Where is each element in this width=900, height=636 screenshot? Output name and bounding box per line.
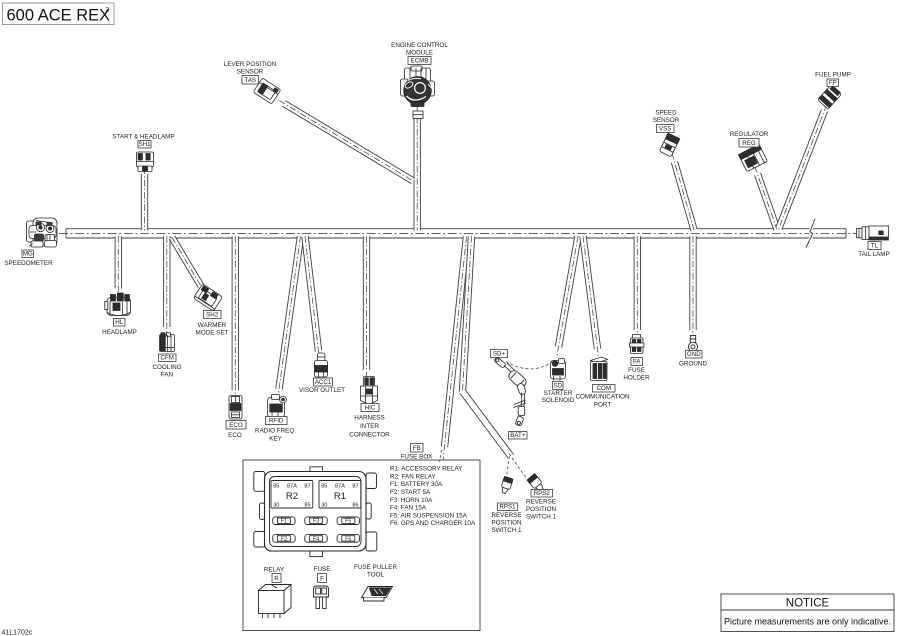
svg-text:RPS2: RPS2 xyxy=(534,490,551,497)
svg-text:85: 85 xyxy=(273,484,279,490)
svg-text:HOLDER: HOLDER xyxy=(623,375,650,382)
svg-text:LEVER POSITION: LEVER POSITION xyxy=(224,61,277,68)
svg-text:MG: MG xyxy=(23,251,33,258)
svg-text:REG: REG xyxy=(742,140,756,147)
svg-text:HIC: HIC xyxy=(365,405,376,412)
svg-text:CFM: CFM xyxy=(160,355,173,362)
svg-text:SOLENOID: SOLENOID xyxy=(542,397,575,404)
svg-text:R: R xyxy=(274,576,279,583)
svg-text:TAS: TAS xyxy=(244,77,256,84)
svg-text:COOLING: COOLING xyxy=(152,364,181,371)
svg-text:RELAY: RELAY xyxy=(264,567,285,574)
svg-text:POSITION: POSITION xyxy=(526,506,557,513)
svg-text:COM: COM xyxy=(597,385,611,392)
svg-text:GROUND: GROUND xyxy=(679,361,707,368)
svg-text:VSS: VSS xyxy=(659,126,671,133)
svg-text:BAT+: BAT+ xyxy=(510,432,526,439)
svg-text:SPEED: SPEED xyxy=(655,110,677,117)
svg-text:87A: 87A xyxy=(287,484,297,490)
svg-text:F5: AIR SUSPENSION 15A: F5: AIR SUSPENSION 15A xyxy=(390,512,468,519)
svg-text:87: 87 xyxy=(304,484,310,490)
svg-text:RPS1: RPS1 xyxy=(499,504,516,511)
svg-text:86: 86 xyxy=(352,503,358,509)
svg-text:F: F xyxy=(320,576,324,583)
svg-text:F6: F6 xyxy=(345,536,351,542)
svg-text:85: 85 xyxy=(321,484,327,490)
svg-text:GND: GND xyxy=(687,351,701,358)
svg-text:NOTICE: NOTICE xyxy=(786,598,830,610)
svg-text:30: 30 xyxy=(321,503,327,509)
svg-text:87: 87 xyxy=(352,484,358,490)
svg-text:SWITCH 1: SWITCH 1 xyxy=(526,514,557,521)
svg-text:TL: TL xyxy=(871,243,879,250)
svg-text:START & HEADLAMP: START & HEADLAMP xyxy=(112,133,174,140)
svg-text:F6: GPS AND CHARGER 10A: F6: GPS AND CHARGER 10A xyxy=(390,520,476,527)
svg-text:MODE SET: MODE SET xyxy=(196,330,229,337)
svg-text:R1: ACCESSORY RELAY: R1: ACCESSORY RELAY xyxy=(390,466,463,473)
svg-text:SPEEDOMETER: SPEEDOMETER xyxy=(4,260,53,267)
svg-text:SH1: SH1 xyxy=(138,141,151,148)
svg-text:600 ACE REX: 600 ACE REX xyxy=(7,7,111,25)
svg-text:SH2: SH2 xyxy=(206,312,219,319)
svg-text:SD: SD xyxy=(553,383,562,390)
svg-text:RADIO FREQ.: RADIO FREQ. xyxy=(255,428,296,435)
svg-text:F2: START 5A: F2: START 5A xyxy=(390,489,431,496)
svg-text:41L1702c: 41L1702c xyxy=(2,630,33,636)
svg-text:FUSE: FUSE xyxy=(628,367,645,374)
svg-text:87A: 87A xyxy=(335,484,345,490)
svg-text:COMMUNICATION: COMMUNICATION xyxy=(575,394,630,401)
svg-text:F3: HORN 10A: F3: HORN 10A xyxy=(390,497,433,504)
svg-text:REVERSE: REVERSE xyxy=(526,499,556,506)
svg-text:F4: F4 xyxy=(313,536,319,542)
svg-text:FB: FB xyxy=(413,445,421,452)
svg-text:TAIL LAMP: TAIL LAMP xyxy=(858,251,890,258)
svg-text:FUEL PUMP: FUEL PUMP xyxy=(815,72,851,79)
svg-text:Picture measurements are only: Picture measurements are only indicative… xyxy=(724,617,891,627)
svg-text:POSITION: POSITION xyxy=(491,520,522,527)
svg-text:PORT: PORT xyxy=(594,402,612,409)
svg-text:SD+: SD+ xyxy=(493,351,506,358)
svg-text:HL: HL xyxy=(115,319,123,326)
svg-text:F1: F1 xyxy=(281,519,287,525)
svg-text:REGULATOR: REGULATOR xyxy=(730,131,769,138)
svg-text:STARTER: STARTER xyxy=(544,390,573,397)
svg-text:2: 2 xyxy=(106,7,110,14)
svg-text:VISOR OUTLET: VISOR OUTLET xyxy=(299,387,345,394)
svg-text:WARMER: WARMER xyxy=(198,322,227,329)
svg-text:REVERSE: REVERSE xyxy=(491,512,521,519)
svg-text:KEY: KEY xyxy=(269,436,282,443)
svg-text:85: 85 xyxy=(304,503,310,509)
svg-text:FA: FA xyxy=(633,359,641,366)
svg-text:R2: R2 xyxy=(286,491,298,502)
svg-text:FUSE: FUSE xyxy=(314,566,331,573)
svg-text:ENGINE CONTROL: ENGINE CONTROL xyxy=(391,42,448,49)
svg-text:ECO: ECO xyxy=(228,432,242,439)
svg-text:INTER: INTER xyxy=(360,423,379,430)
svg-text:ECMB: ECMB xyxy=(411,58,429,65)
svg-text:ACC1: ACC1 xyxy=(315,379,332,386)
svg-text:HARNESS: HARNESS xyxy=(354,415,384,422)
svg-text:FP: FP xyxy=(829,80,837,87)
svg-text:CONNECTOR: CONNECTOR xyxy=(349,432,390,439)
svg-text:ECO: ECO xyxy=(229,422,243,429)
svg-text:R1: R1 xyxy=(334,491,346,502)
svg-text:SENSOR: SENSOR xyxy=(237,69,264,76)
svg-text:FAN: FAN xyxy=(161,372,174,379)
svg-text:30: 30 xyxy=(273,503,279,509)
svg-text:FUSE PULLER: FUSE PULLER xyxy=(354,564,397,571)
svg-text:SENSOR: SENSOR xyxy=(653,117,680,124)
svg-text:F4: FAN 15A: F4: FAN 15A xyxy=(390,505,427,512)
svg-text:HEADLAMP: HEADLAMP xyxy=(102,329,137,336)
svg-text:SWITCH 1: SWITCH 1 xyxy=(491,527,522,534)
svg-text:F5: F5 xyxy=(345,519,351,525)
svg-text:F2: F2 xyxy=(281,536,287,542)
svg-text:F1: BATTERY 30A: F1: BATTERY 30A xyxy=(390,481,443,488)
svg-text:MODULE: MODULE xyxy=(406,50,433,57)
svg-text:F3: F3 xyxy=(313,519,319,525)
svg-text:FUSE BOX: FUSE BOX xyxy=(401,454,434,461)
svg-text:TOOL: TOOL xyxy=(367,572,385,579)
svg-text:R2: FAN RELAY: R2: FAN RELAY xyxy=(390,473,437,480)
svg-text:RFID: RFID xyxy=(269,418,284,425)
